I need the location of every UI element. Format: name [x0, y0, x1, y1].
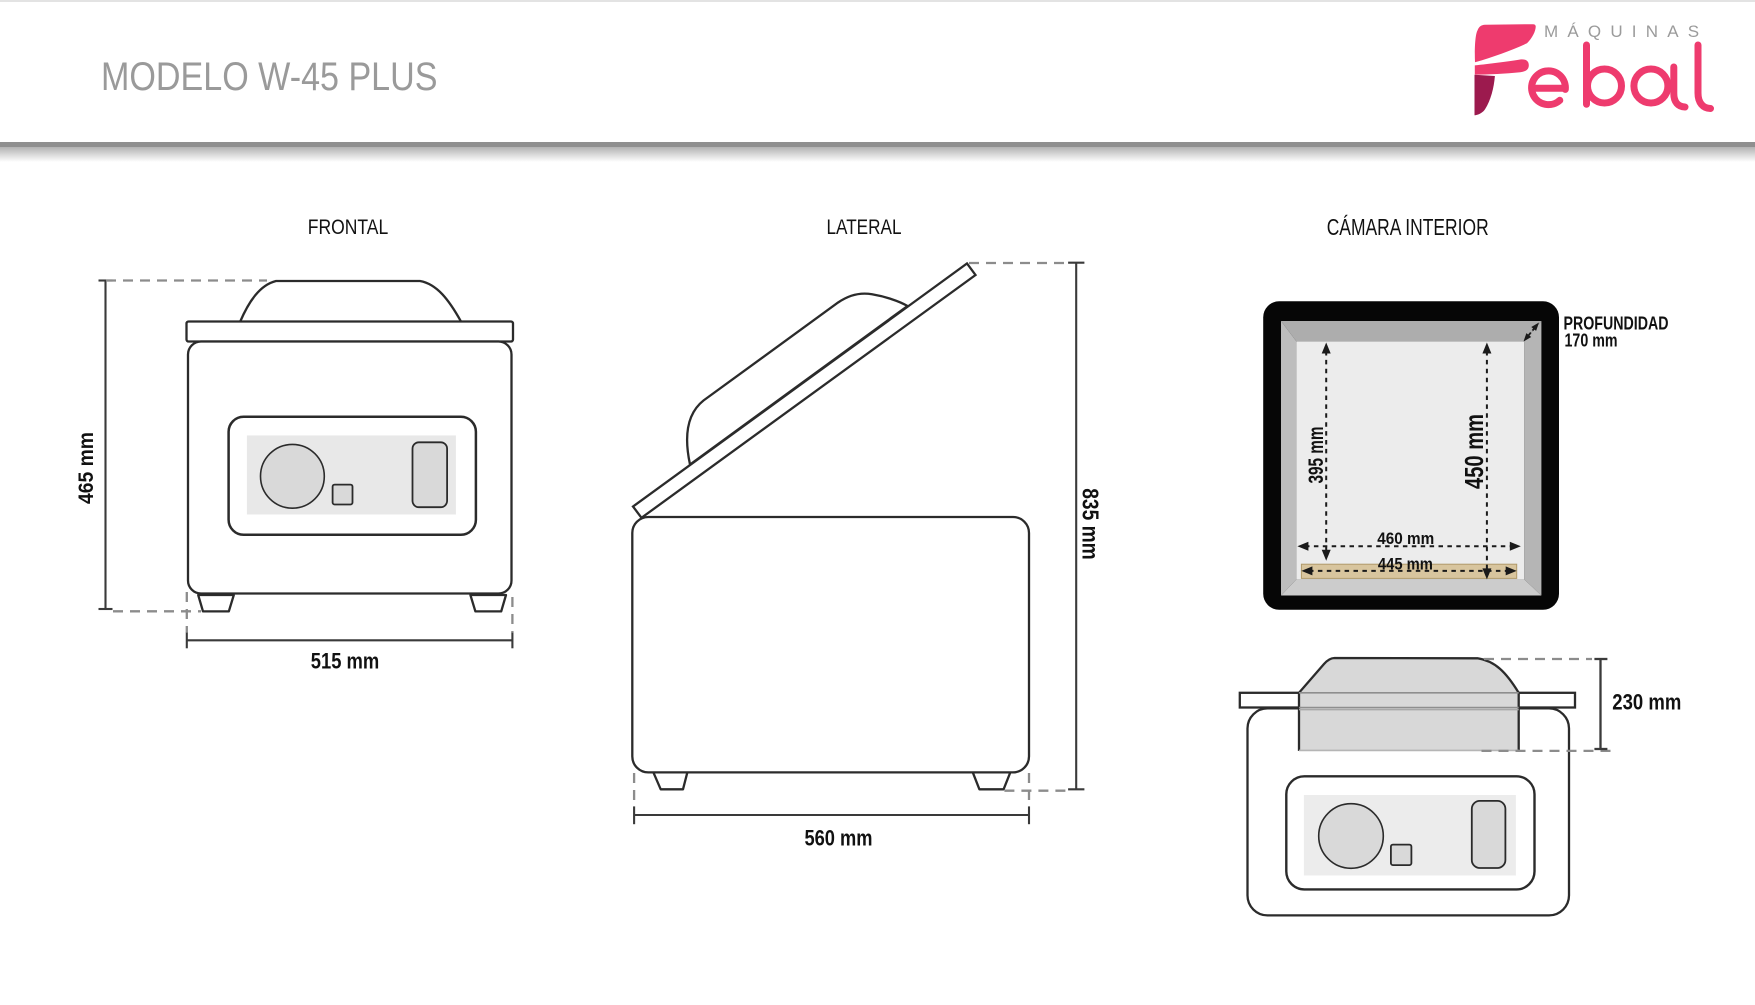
svg-text:LATERAL: LATERAL [827, 215, 902, 239]
svg-text:FRONTAL: FRONTAL [308, 215, 389, 239]
svg-text:560 mm: 560 mm [805, 826, 873, 851]
svg-text:395 mm: 395 mm [1305, 427, 1328, 484]
svg-text:CÁMARA INTERIOR: CÁMARA INTERIOR [1327, 214, 1489, 240]
svg-text:170 mm: 170 mm [1565, 331, 1618, 351]
svg-text:515 mm: 515 mm [311, 649, 380, 674]
svg-text:835 mm: 835 mm [1078, 488, 1104, 560]
svg-text:230 mm: 230 mm [1612, 690, 1681, 715]
svg-text:445 mm: 445 mm [1378, 556, 1433, 574]
svg-text:460 mm: 460 mm [1377, 530, 1434, 548]
svg-text:465 mm: 465 mm [75, 432, 98, 504]
svg-text:450 mm: 450 mm [1459, 414, 1489, 489]
